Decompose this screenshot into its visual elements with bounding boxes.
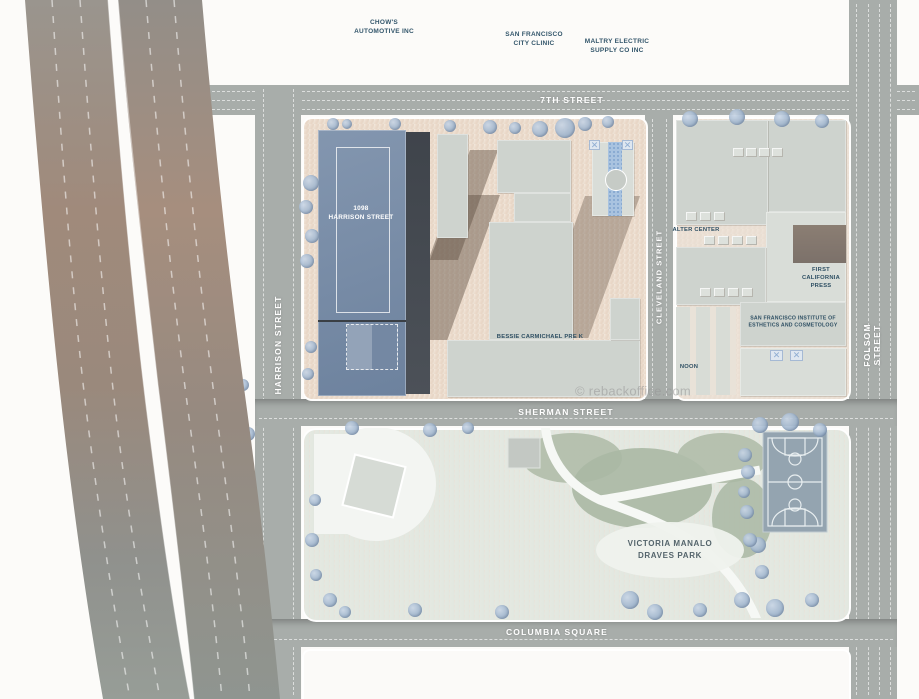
lane-line <box>666 119 667 396</box>
lane-line <box>263 89 264 695</box>
building-1098-roof-outline <box>336 147 390 313</box>
tree-icon <box>578 117 592 131</box>
tree-icon <box>805 593 819 607</box>
business-label-city-clinic: SAN FRANCISCO CITY CLINIC <box>505 31 563 49</box>
tree-icon <box>339 606 351 618</box>
lane-line <box>856 4 857 695</box>
tree-icon <box>532 121 548 137</box>
tree-icon <box>647 604 663 620</box>
tree-icon <box>555 118 575 138</box>
tree-icon <box>444 120 456 132</box>
business-label-chows: CHOW'S AUTOMOTIVE INC <box>354 19 414 37</box>
lane-line <box>652 119 653 396</box>
tree-icon <box>327 118 339 130</box>
x-marker-icon: ✕ <box>770 350 783 361</box>
tree-icon <box>729 109 745 125</box>
tree-icon <box>323 593 337 607</box>
tree-icon <box>241 427 255 441</box>
tree-icon <box>235 643 249 657</box>
roof-unit <box>714 288 725 297</box>
site-plan-map: ✕ ✕ ✕ ✕ <box>0 0 919 699</box>
tree-icon <box>299 200 313 214</box>
road-folsom-street <box>849 0 897 699</box>
roof-unit <box>746 236 757 245</box>
tree-icon <box>693 603 707 617</box>
block-park <box>302 428 851 622</box>
tree-icon <box>483 120 497 134</box>
tree-icon <box>734 592 750 608</box>
tree-icon <box>345 421 359 435</box>
tree-icon <box>309 494 321 506</box>
tree-icon <box>774 111 790 127</box>
tree-icon <box>305 341 317 353</box>
tree-icon <box>741 465 755 479</box>
commercial-building <box>676 120 768 225</box>
tree-icon <box>781 413 799 431</box>
tree-icon <box>242 605 254 617</box>
tree-icon <box>303 175 319 191</box>
tree-icon <box>755 565 769 579</box>
roof-unit <box>686 212 697 221</box>
tree-icon <box>232 566 248 582</box>
tree-icon <box>738 486 750 498</box>
school-building-slab <box>447 340 640 397</box>
freeway-label-james-lick: JAMES LICK FREEWAY <box>82 345 103 459</box>
x-marker-icon: ✕ <box>589 140 600 150</box>
lane-line <box>890 4 891 695</box>
x-marker-icon: ✕ <box>622 140 633 150</box>
road-harrison-street <box>255 85 301 699</box>
tree-icon <box>300 254 314 268</box>
roof-unit <box>728 288 739 297</box>
roof-unit <box>733 148 744 157</box>
building-1098-lower-unit <box>346 324 398 370</box>
tree-icon <box>240 522 254 536</box>
business-label-maltry: MALTRY ELECTRIC SUPPLY CO INC <box>585 38 649 56</box>
roof-unit <box>714 212 725 221</box>
school-building <box>437 134 468 238</box>
building-1098-divider <box>318 320 406 322</box>
school-building-wing <box>489 222 573 340</box>
lane-line <box>868 4 869 695</box>
school-building <box>514 193 571 222</box>
road-cleveland-street <box>645 115 673 400</box>
school-building <box>610 298 640 340</box>
tree-icon <box>509 122 521 134</box>
tree-icon <box>682 111 698 127</box>
block-south <box>302 649 851 699</box>
tree-icon <box>740 505 754 519</box>
tree-icon <box>752 417 768 433</box>
tree-icon <box>495 605 509 619</box>
tree-icon <box>602 116 614 128</box>
tree-icon <box>743 533 757 547</box>
parking-rows <box>676 307 736 395</box>
lane-line <box>879 4 880 695</box>
roof-unit <box>742 288 753 297</box>
tree-icon <box>408 603 422 617</box>
tree-icon <box>305 533 319 547</box>
roof-unit <box>718 236 729 245</box>
commercial-dark-building <box>793 225 846 263</box>
institute-building <box>740 302 846 346</box>
lane-line <box>293 89 294 695</box>
tree-icon <box>310 569 322 581</box>
tree-icon <box>237 379 249 391</box>
tree-icon <box>766 599 784 617</box>
tree-icon <box>815 114 829 128</box>
roof-unit <box>746 148 757 157</box>
tree-icon <box>462 422 474 434</box>
freeway-lane-line <box>52 0 130 699</box>
school-building <box>497 140 571 193</box>
tree-icon <box>342 119 352 129</box>
roof-unit <box>759 148 770 157</box>
tree-icon <box>738 448 752 462</box>
tree-icon <box>423 423 437 437</box>
x-marker-icon: ✕ <box>790 350 803 361</box>
tree-icon <box>389 118 401 130</box>
roof-unit <box>732 236 743 245</box>
roof-unit <box>700 288 711 297</box>
lane-line <box>234 639 893 640</box>
roof-unit <box>704 236 715 245</box>
tree-icon <box>305 229 319 243</box>
building-1098-harrison-side <box>404 132 430 394</box>
roof-unit <box>700 212 711 221</box>
freeway-label-bayshore: BAYSHORE FREEWAY <box>183 287 221 392</box>
atrium-rotunda <box>605 169 627 191</box>
tree-icon <box>231 474 247 490</box>
tree-icon <box>813 423 827 437</box>
tree-icon <box>302 368 314 380</box>
roof-unit <box>772 148 783 157</box>
tree-icon <box>621 591 639 609</box>
road-columbia-square <box>230 619 897 647</box>
